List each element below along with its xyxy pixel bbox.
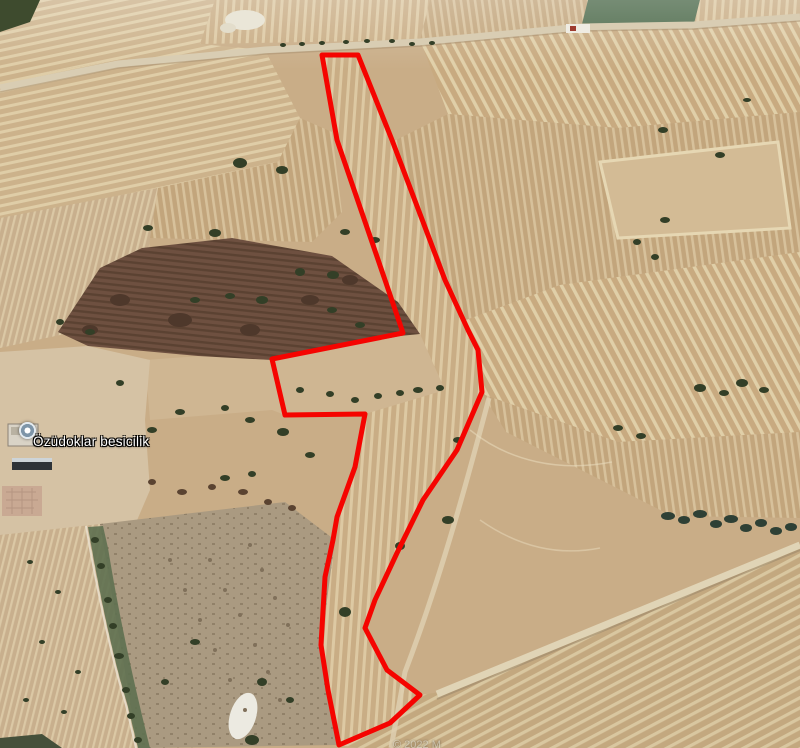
imagery-attribution: © 2022 M (393, 739, 441, 748)
place-label[interactable]: Özüdoklar besicilik (33, 435, 149, 449)
satellite-imagery (0, 0, 800, 748)
map-canvas[interactable]: Özüdoklar besicilik © 2022 M (0, 0, 800, 748)
